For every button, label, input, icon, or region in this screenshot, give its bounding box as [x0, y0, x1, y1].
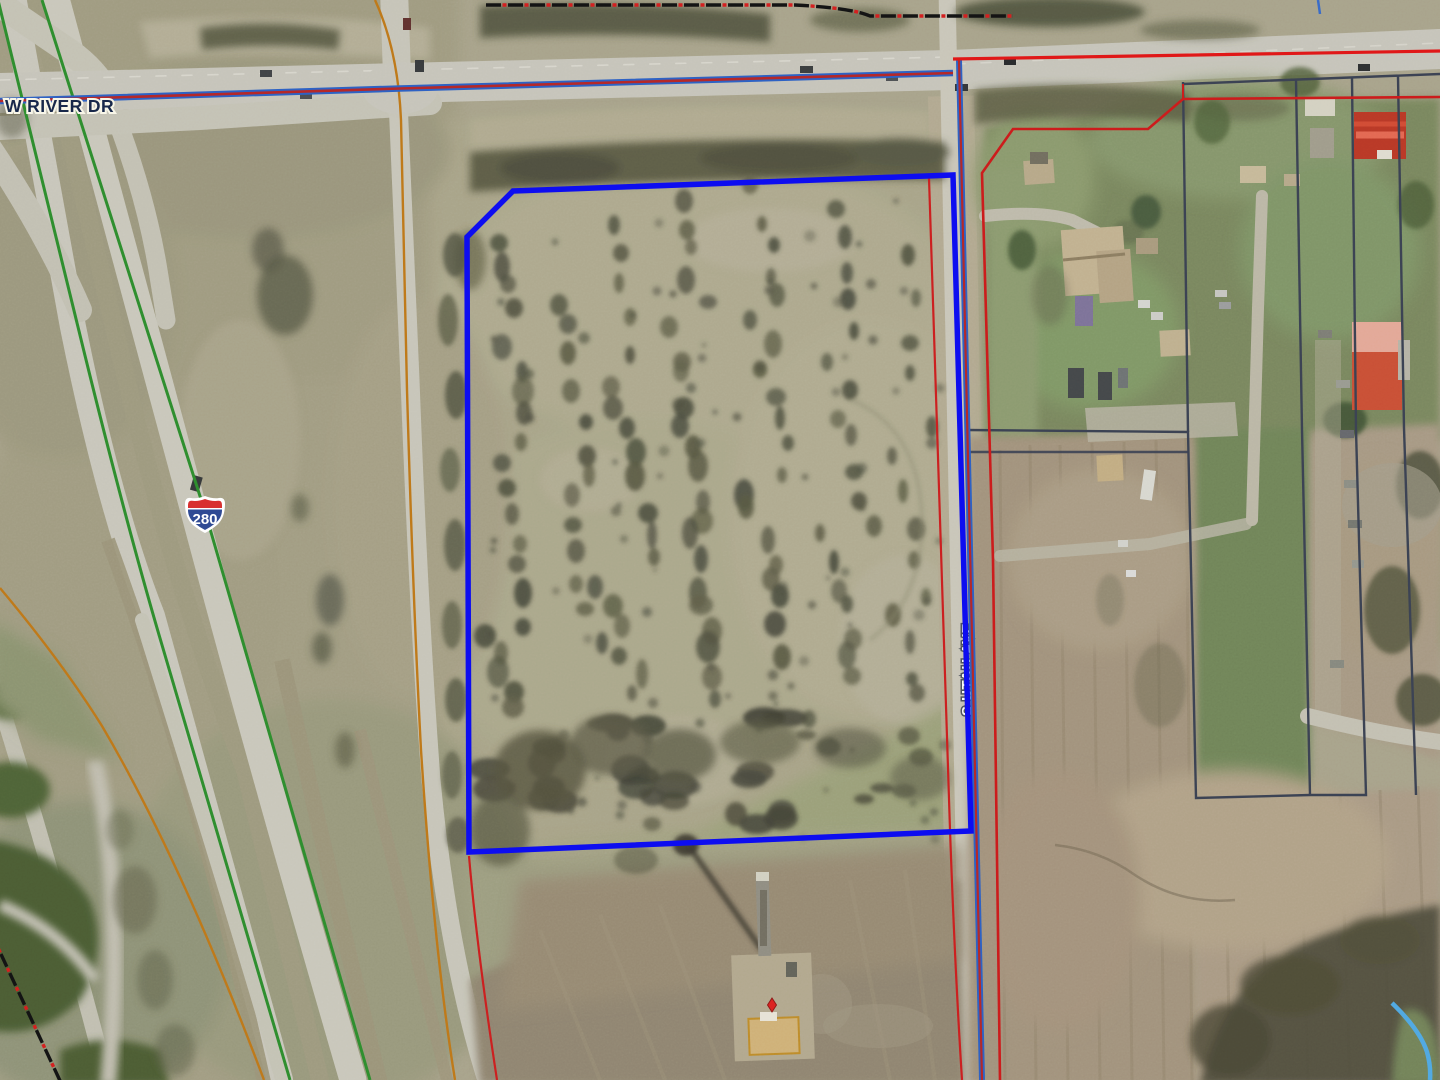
svg-text:W RIVER DR: W RIVER DR	[5, 96, 114, 116]
svg-text:280: 280	[192, 511, 217, 528]
